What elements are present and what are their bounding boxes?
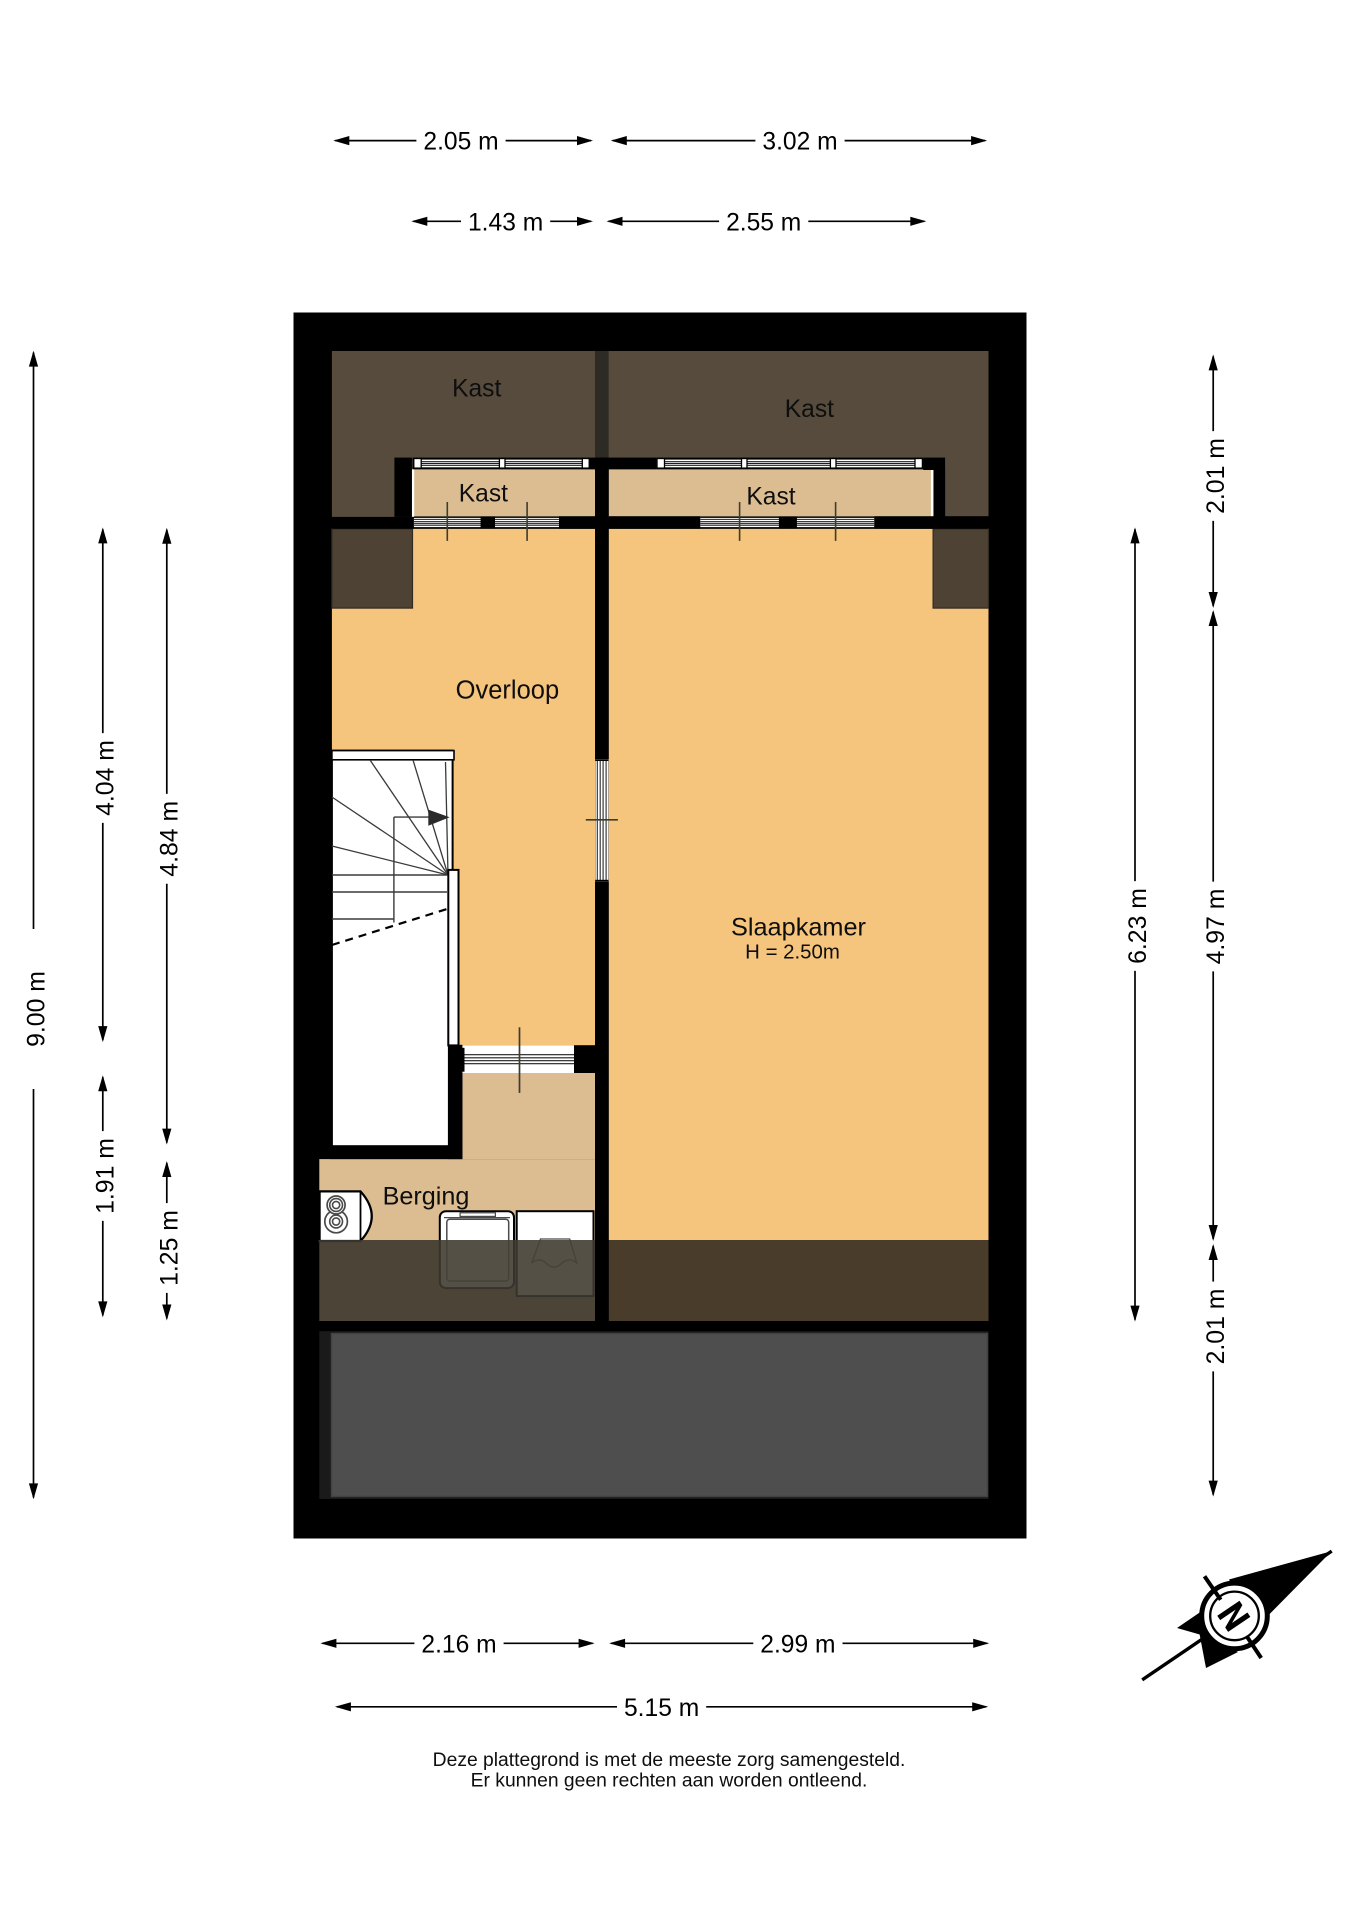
svg-text:2.01 m: 2.01 m (1203, 438, 1230, 514)
svg-text:Kast: Kast (746, 483, 795, 510)
svg-text:4.04 m: 4.04 m (93, 740, 120, 816)
svg-text:Kast: Kast (459, 480, 508, 507)
svg-text:1.91 m: 1.91 m (93, 1138, 120, 1214)
svg-text:Er kunnen geen rechten aan wor: Er kunnen geen rechten aan worden ontlee… (471, 1771, 868, 1792)
svg-text:2.99 m: 2.99 m (760, 1631, 835, 1658)
svg-text:Berging: Berging (383, 1183, 470, 1211)
svg-text:Slaapkamer: Slaapkamer (731, 914, 866, 942)
svg-text:Kast: Kast (452, 376, 501, 403)
svg-text:1.43 m: 1.43 m (468, 209, 543, 236)
svg-text:3.02 m: 3.02 m (762, 129, 837, 156)
svg-text:2.55 m: 2.55 m (726, 209, 801, 236)
svg-text:4.97 m: 4.97 m (1203, 889, 1230, 965)
svg-text:5.15 m: 5.15 m (624, 1695, 699, 1722)
svg-text:Kast: Kast (785, 396, 834, 423)
svg-text:2.05 m: 2.05 m (423, 129, 498, 156)
svg-text:6.23 m: 6.23 m (1125, 888, 1152, 964)
svg-text:Overloop: Overloop (456, 677, 559, 705)
svg-text:H = 2.50m: H = 2.50m (745, 942, 840, 964)
svg-text:Deze plattegrond is met de mee: Deze plattegrond is met de meeste zorg s… (433, 1750, 906, 1771)
svg-text:2.16 m: 2.16 m (421, 1631, 496, 1658)
svg-text:1.25 m: 1.25 m (157, 1210, 184, 1286)
svg-text:4.84 m: 4.84 m (157, 801, 184, 877)
svg-text:9.00 m: 9.00 m (23, 971, 50, 1047)
svg-text:2.01 m: 2.01 m (1203, 1289, 1230, 1365)
